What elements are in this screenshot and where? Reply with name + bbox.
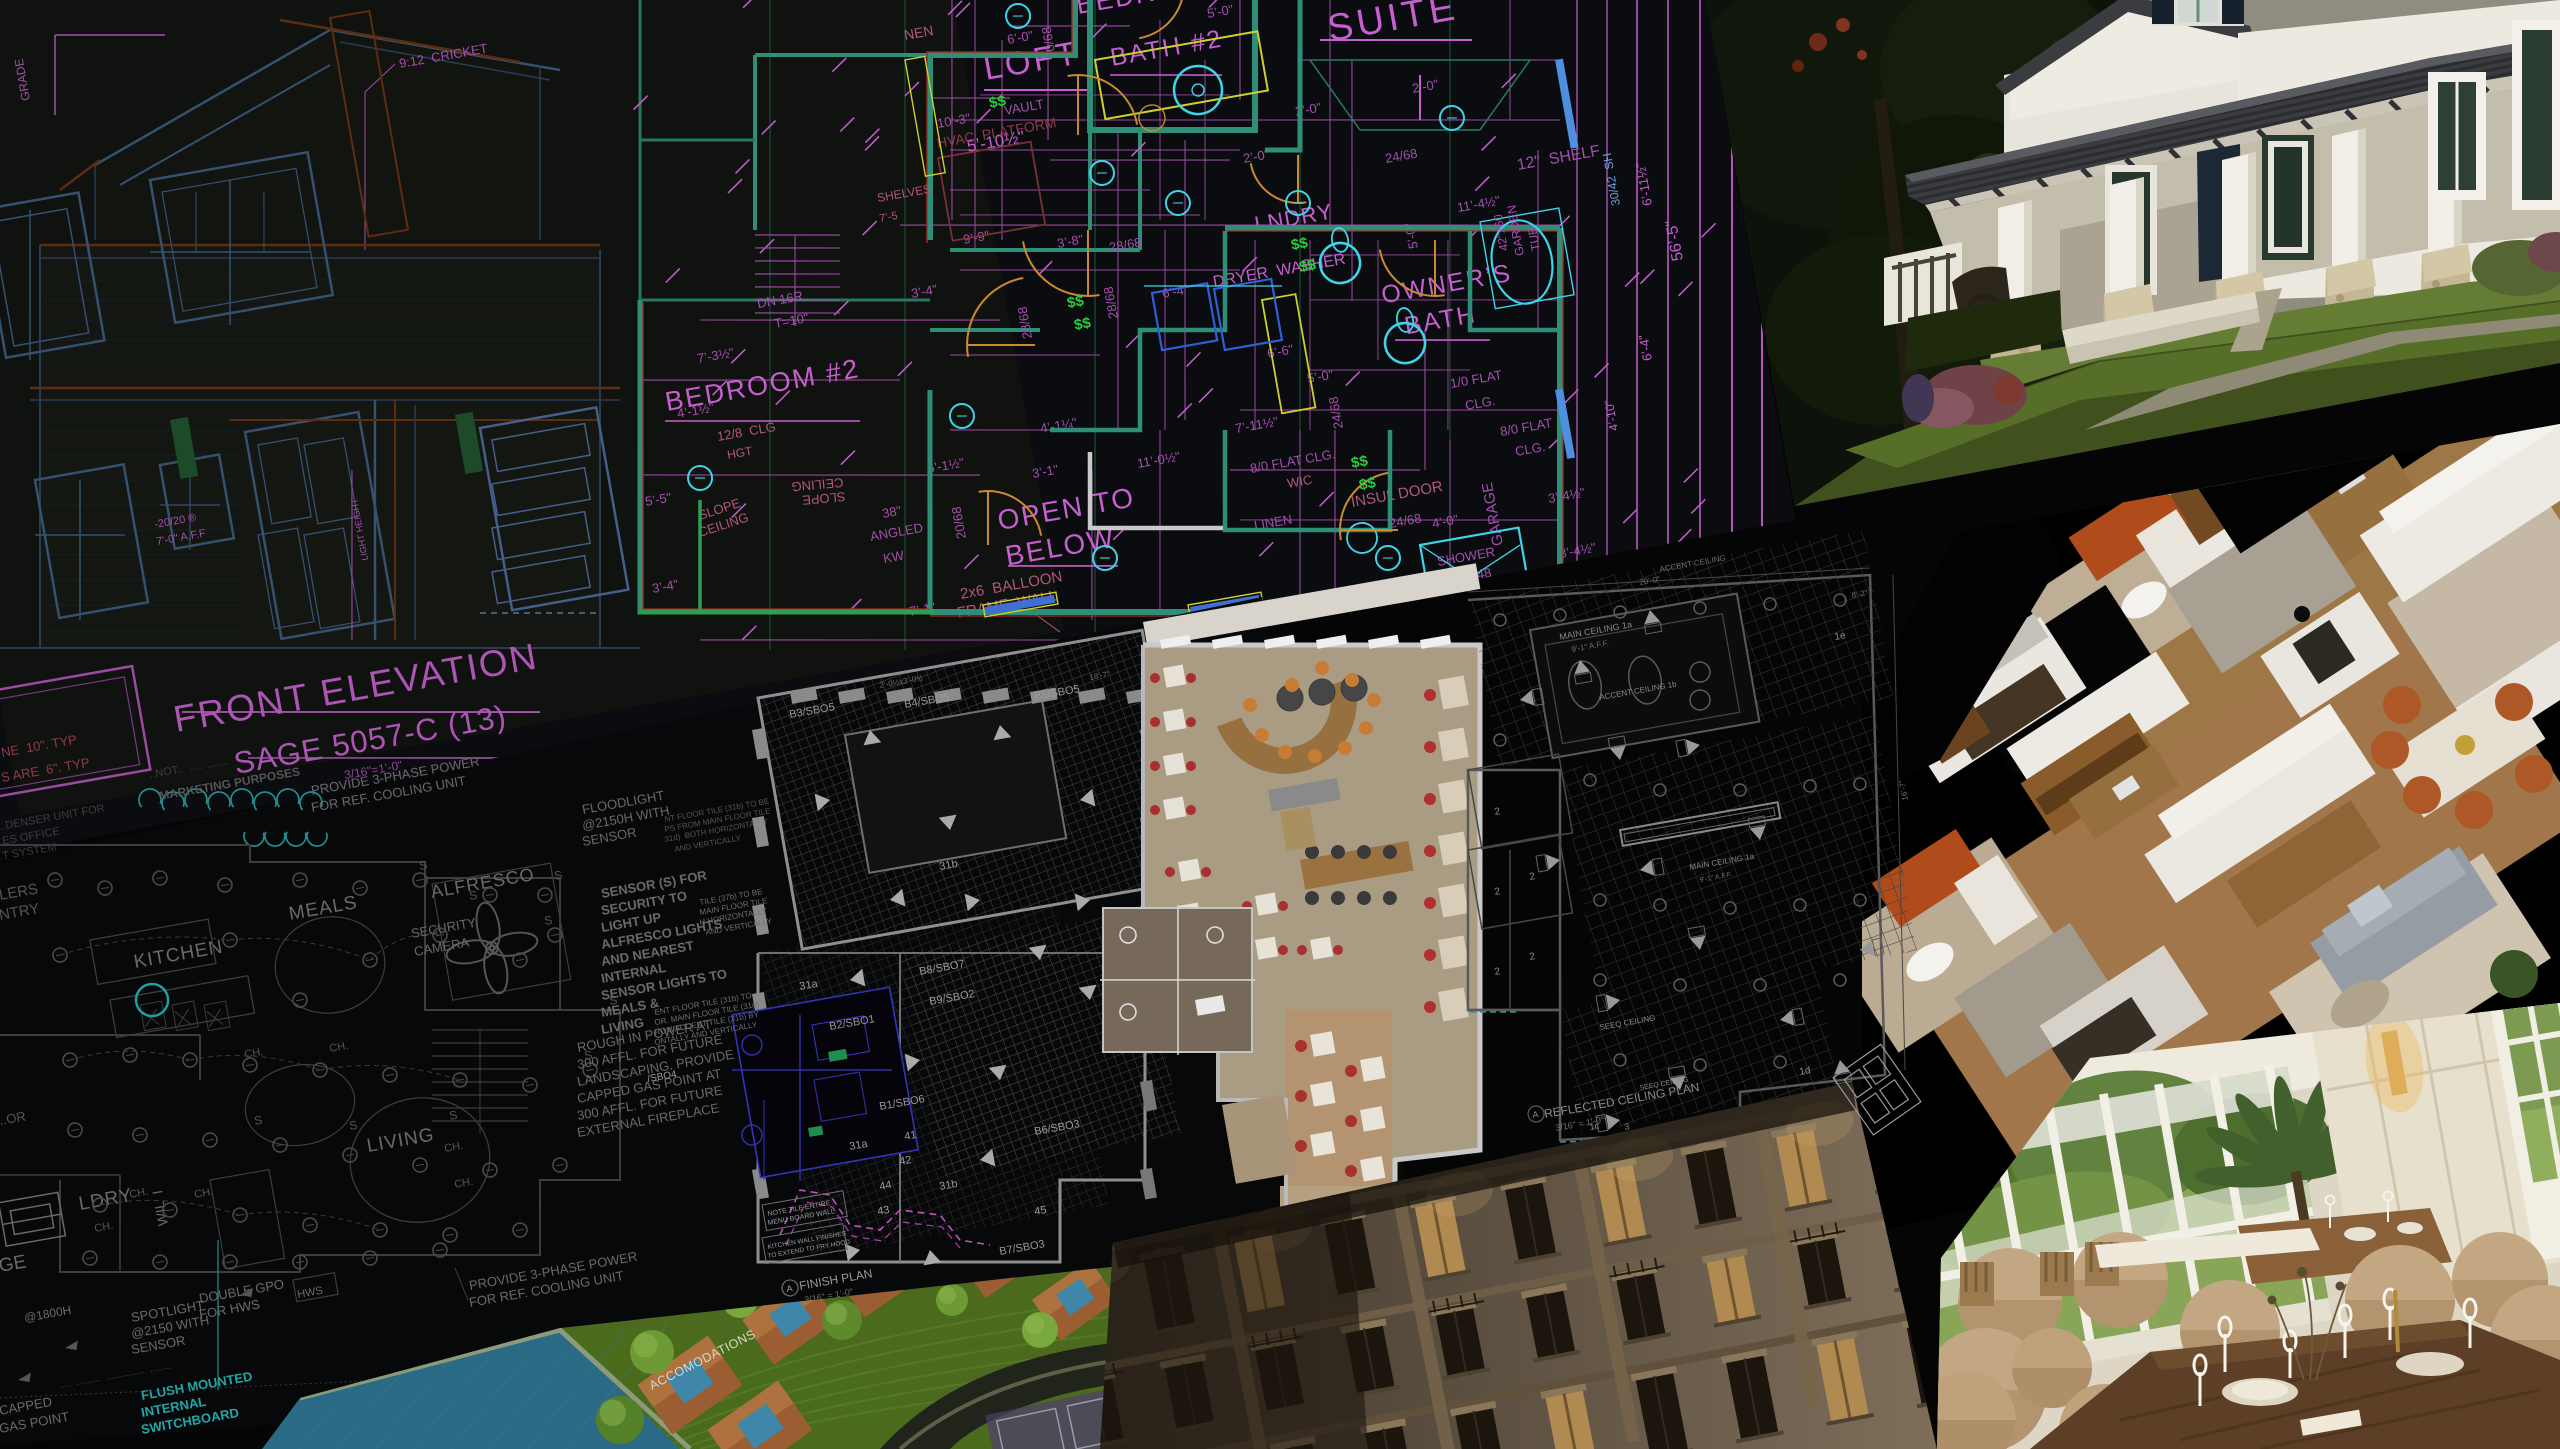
svg-text:45: 45 bbox=[1033, 1204, 1047, 1218]
svg-text:1d: 1d bbox=[1799, 1065, 1812, 1078]
svg-text:43: 43 bbox=[876, 1204, 890, 1218]
svg-text:42: 42 bbox=[898, 1154, 912, 1168]
svg-text:44: 44 bbox=[878, 1179, 892, 1193]
svg-text:41: 41 bbox=[903, 1129, 917, 1143]
